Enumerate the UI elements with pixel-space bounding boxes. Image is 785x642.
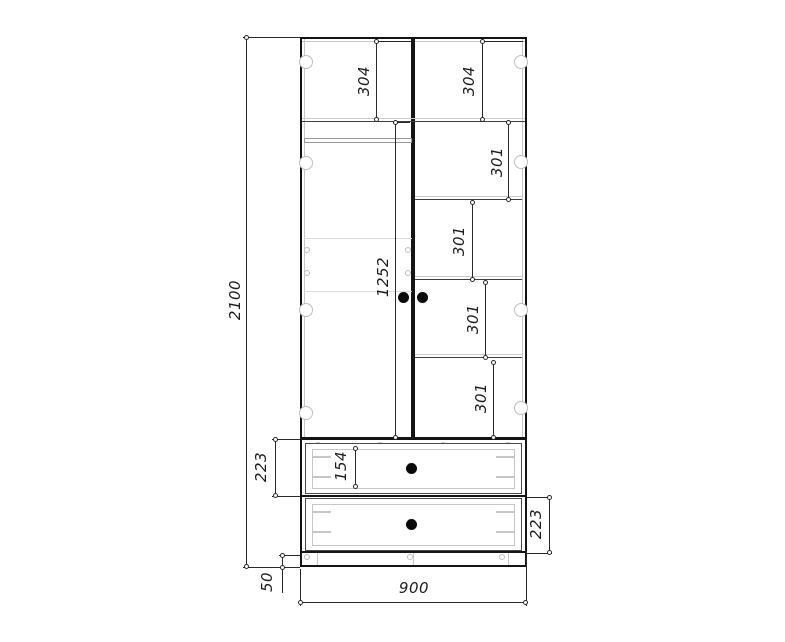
hinge-icon bbox=[299, 406, 313, 420]
hinge-icon bbox=[299, 55, 313, 69]
right-panel-inner-edge bbox=[522, 39, 523, 437]
dim-drawer-inner-front-height: 154 bbox=[332, 436, 350, 496]
dim-top-compartment-right: 304 bbox=[460, 51, 478, 111]
dim-line-drawer-bottom bbox=[549, 497, 550, 553]
dim-door-section-height: 1252 bbox=[374, 247, 392, 307]
dim-line-top-left bbox=[376, 41, 377, 120]
dim-line-shelf-gap-2 bbox=[472, 202, 473, 280]
hinge-icon bbox=[514, 155, 528, 169]
dim-line-top-right bbox=[482, 41, 483, 120]
dim-top-compartment-left: 304 bbox=[355, 51, 373, 111]
drawer-slide-mark bbox=[313, 531, 331, 533]
dim-line-shelf-gap-4 bbox=[493, 362, 494, 438]
dim-right-shelf-gap-4: 301 bbox=[472, 368, 490, 428]
cam-fitting bbox=[499, 554, 505, 560]
extension-line bbox=[243, 37, 300, 38]
dim-line-overall-height bbox=[246, 37, 247, 567]
dim-line-overall-width bbox=[300, 602, 526, 603]
dim-right-shelf-gap-1: 301 bbox=[488, 132, 506, 192]
cam-fitting bbox=[304, 554, 310, 560]
drawer-slide-mark bbox=[313, 456, 331, 458]
cam-fitting bbox=[405, 270, 411, 276]
dim-overall-width: 900 bbox=[384, 579, 444, 597]
drawer-knob-top bbox=[406, 463, 417, 474]
technical-drawing-canvas: 2100 1252 304 304 301 301 301 301 223 15… bbox=[0, 0, 785, 642]
dim-drawer-top-height: 223 bbox=[252, 437, 270, 497]
drawer-slide-mark bbox=[496, 511, 514, 513]
cam-fitting bbox=[304, 247, 310, 253]
cam-fitting bbox=[405, 247, 411, 253]
door-knob-left bbox=[398, 292, 409, 303]
drawer-slide-mark bbox=[313, 476, 331, 478]
drawer-slide-mark bbox=[496, 531, 514, 533]
extension-line bbox=[526, 551, 527, 606]
plinth-seam bbox=[317, 553, 318, 565]
hinge-icon bbox=[514, 303, 528, 317]
dim-line-drawer-top bbox=[275, 439, 276, 496]
plinth-seam bbox=[413, 553, 414, 565]
drawer-knob-bottom bbox=[406, 519, 417, 530]
dim-drawer-bottom-height: 223 bbox=[527, 494, 545, 554]
dim-plinth-height: 50 bbox=[258, 552, 276, 612]
top-shelf bbox=[302, 118, 525, 122]
dim-right-shelf-gap-3: 301 bbox=[464, 289, 482, 349]
extension-line bbox=[482, 41, 523, 42]
right-shelf-3 bbox=[415, 354, 522, 358]
extension-line bbox=[376, 41, 411, 42]
right-shelf-2 bbox=[415, 276, 522, 280]
drawer-slide-mark bbox=[496, 476, 514, 478]
dim-right-shelf-gap-2: 301 bbox=[450, 211, 468, 271]
dim-line-shelf-gap-1 bbox=[508, 122, 509, 200]
plinth-seam bbox=[508, 553, 509, 565]
hinge-icon bbox=[299, 303, 313, 317]
hinge-icon bbox=[514, 401, 528, 415]
dim-line-shelf-gap-3 bbox=[485, 282, 486, 358]
door-knob-right bbox=[417, 292, 428, 303]
dim-line-plinth bbox=[282, 555, 283, 593]
hinge-icon bbox=[299, 156, 313, 170]
drawer-slide-mark bbox=[313, 511, 331, 513]
drawer-slide-mark bbox=[496, 456, 514, 458]
cam-fitting bbox=[304, 270, 310, 276]
dim-overall-height: 2100 bbox=[226, 270, 244, 330]
hinge-icon bbox=[514, 55, 528, 69]
dim-line-drawer-inner bbox=[355, 448, 356, 487]
dim-line-door-section bbox=[395, 122, 396, 438]
